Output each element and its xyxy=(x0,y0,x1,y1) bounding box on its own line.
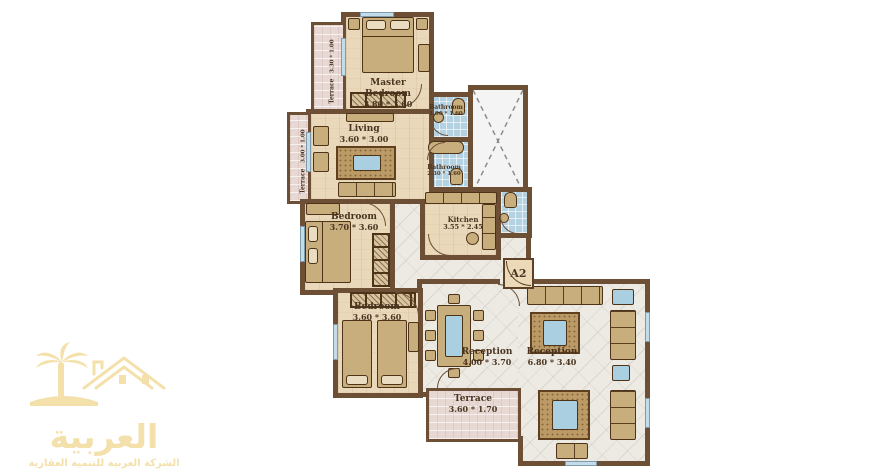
side-table xyxy=(612,289,634,305)
stair-shaft xyxy=(468,85,528,197)
bed xyxy=(377,320,407,388)
window xyxy=(645,398,650,428)
shaft-void-cross xyxy=(473,90,523,192)
room-label-terrace-top: Terrace 3.30 * 1.00 xyxy=(318,38,337,106)
coffee-table xyxy=(552,400,578,430)
dresser xyxy=(418,44,430,72)
kitchen-stove xyxy=(466,232,479,245)
reception-rug xyxy=(538,390,590,440)
pillow xyxy=(308,248,318,264)
coffee-table xyxy=(353,155,381,171)
room-label-bathroom-mid: Bathroom 2.30 * 1.60 xyxy=(425,164,463,178)
pillow xyxy=(381,375,403,385)
dining-chair xyxy=(448,294,460,304)
wardrobe xyxy=(372,233,390,287)
room-label-terrace-mid: Terrace 3.00 * 1.00 xyxy=(289,128,308,196)
armchair xyxy=(313,152,329,172)
window xyxy=(300,226,305,262)
room-label-reception-dining: Reception 4.00 * 3.70 xyxy=(455,347,519,367)
tv-unit xyxy=(346,113,394,122)
dining-chair xyxy=(473,330,484,341)
side-table xyxy=(612,365,630,381)
nightstand xyxy=(416,18,428,30)
blanket-line xyxy=(363,36,413,37)
pillow xyxy=(346,375,368,385)
pillow xyxy=(366,20,386,30)
dresser xyxy=(408,322,419,352)
dining-chair xyxy=(473,310,484,321)
logo-brand-text: العربية xyxy=(15,420,193,455)
room-label-bathroom-top: Bathroom 1.90 * 1.60 xyxy=(429,104,463,118)
living-sofa xyxy=(338,182,396,197)
window xyxy=(341,38,346,76)
room-label-reception-living: Reception 6.80 * 3.40 xyxy=(514,347,590,367)
kitchen-counter-top xyxy=(425,192,497,204)
sofa xyxy=(610,390,636,440)
pillow xyxy=(308,226,318,242)
company-logo: العربية الشركة العربية للتنمية العقارية xyxy=(15,342,193,469)
toilet xyxy=(504,192,517,208)
coffee-table xyxy=(543,320,567,346)
room-label-master-bedroom: Master Bedroom 3.80 * 3.60 xyxy=(347,78,429,109)
pillow xyxy=(390,20,410,30)
logo-tagline-text: الشركة العربية للتنمية العقارية xyxy=(15,458,193,469)
living-rug xyxy=(336,146,396,180)
room-label-living: Living 3.60 * 3.00 xyxy=(328,124,400,144)
entrance-arc xyxy=(506,261,531,286)
dining-chair xyxy=(425,310,436,321)
dining-chair xyxy=(425,350,436,361)
sofa xyxy=(527,286,603,305)
palm-tree-icon xyxy=(30,342,98,406)
room-label-bedroom-mid: Bedroom 3.70 * 3.60 xyxy=(322,212,386,232)
room-label-kitchen: Kitchen 3.55 * 2.45 xyxy=(438,216,488,232)
room-label-terrace-bottom: Terrace 3.60 * 1.70 xyxy=(438,394,508,414)
floor-plan-canvas: A2 Master Bedroom 3.80 * 3.60 Living 3.6… xyxy=(0,0,870,473)
unit-badge: A2 xyxy=(503,258,534,289)
master-bed xyxy=(362,17,414,73)
armchair xyxy=(313,126,329,146)
logo-icon xyxy=(24,342,184,416)
window xyxy=(333,324,338,360)
room-label-bedroom-bottom: Bedroom 3.60 * 3.60 xyxy=(344,302,410,322)
window xyxy=(360,12,394,17)
nightstand xyxy=(348,18,360,30)
sofa xyxy=(610,310,636,360)
window xyxy=(565,461,597,466)
window xyxy=(645,312,650,342)
sofa xyxy=(556,443,588,459)
dining-chair xyxy=(425,330,436,341)
bed xyxy=(342,320,372,388)
